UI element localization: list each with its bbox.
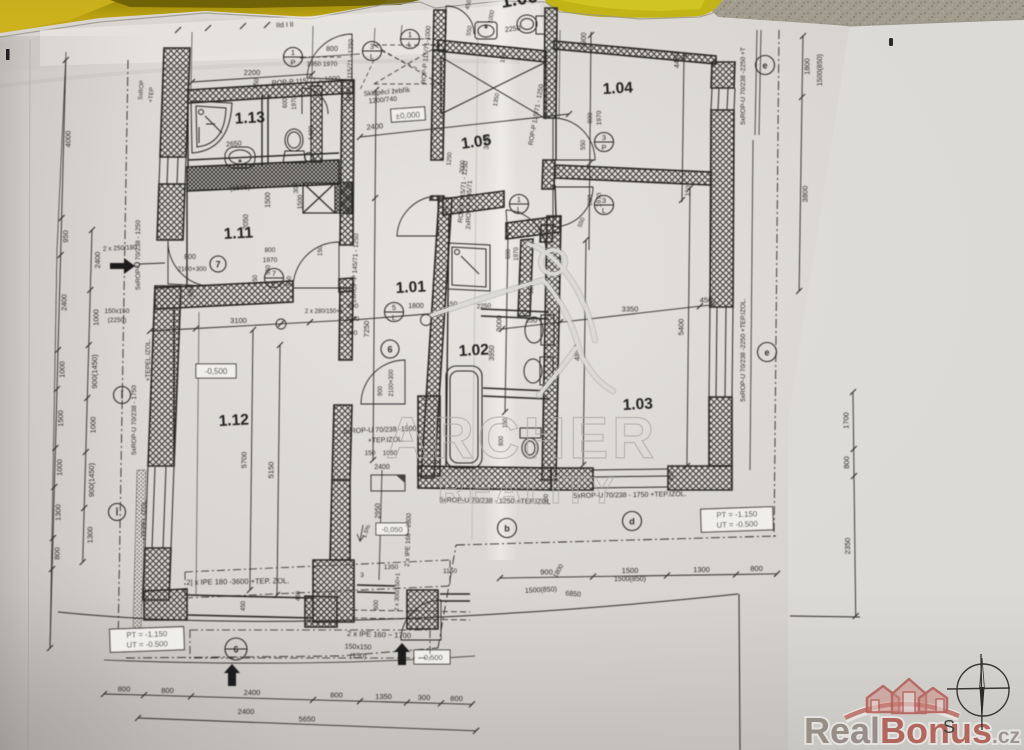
svg-text:150: 150	[525, 316, 538, 325]
svg-text:1000: 1000	[55, 459, 64, 476]
svg-text:450: 450	[189, 286, 195, 297]
svg-text:2200: 2200	[244, 68, 261, 77]
svg-text:1970: 1970	[263, 257, 278, 264]
svg-text:1700: 1700	[841, 412, 850, 429]
svg-text:3: 3	[602, 196, 606, 205]
svg-text:800: 800	[265, 247, 276, 254]
svg-text:5xROP-U 70/238 -2250 +T: 5xROP-U 70/238 -2250 +T	[740, 47, 747, 125]
svg-text:800: 800	[326, 46, 338, 53]
svg-text:2 x 280/150+1: 2 x 280/150+1	[305, 309, 344, 315]
svg-text:1400: 1400	[308, 125, 315, 140]
svg-text:550: 550	[581, 139, 587, 150]
svg-text:2400: 2400	[59, 294, 68, 311]
svg-text:460: 460	[296, 590, 302, 601]
svg-text:REALITY: REALITY	[438, 470, 617, 511]
svg-text:1000: 1000	[92, 309, 101, 326]
svg-text:800: 800	[348, 303, 359, 310]
svg-text:7: 7	[215, 260, 220, 270]
svg-text:900(1450): 900(1450)	[90, 354, 99, 389]
svg-text:600: 600	[443, 206, 450, 217]
svg-text:1970: 1970	[345, 316, 360, 323]
svg-text:3950: 3950	[489, 345, 496, 361]
svg-text:(150): (150)	[350, 653, 367, 661]
svg-text:L: L	[408, 40, 412, 49]
svg-text:1800: 1800	[803, 58, 812, 75]
svg-text:-0,050: -0,050	[381, 525, 402, 534]
svg-text:2100+300: 2100+300	[177, 266, 206, 273]
svg-text:5xROP-U 70/238 -2250 +TEP.IZOL: 5xROP-U 70/238 -2250 +TEP.IZOL.	[740, 298, 747, 402]
svg-text:150: 150	[365, 450, 376, 457]
svg-text:5xROP-U 70/238 - 1750: 5xROP-U 70/238 - 1750	[131, 385, 138, 455]
svg-text:4450: 4450	[674, 52, 681, 68]
svg-text:2250: 2250	[476, 302, 491, 310]
svg-text:1300: 1300	[693, 565, 710, 574]
svg-text:UT = -0.500: UT = -0.500	[126, 639, 168, 649]
svg-text:6850: 6850	[565, 590, 581, 598]
svg-text:d: d	[629, 517, 635, 527]
svg-text:1300: 1300	[86, 527, 95, 544]
svg-text:2050: 2050	[243, 214, 250, 230]
svg-text:950: 950	[61, 230, 70, 243]
svg-text:2400: 2400	[366, 121, 383, 131]
svg-text:L: L	[517, 205, 521, 214]
svg-text:2400: 2400	[244, 688, 261, 697]
svg-text:5650: 5650	[299, 714, 316, 723]
svg-text:1500: 1500	[622, 566, 639, 575]
svg-text:1.02: 1.02	[458, 341, 489, 360]
svg-text:3200: 3200	[483, 134, 491, 150]
svg-text:PT = -1.150: PT = -1.150	[716, 509, 758, 519]
svg-text:600: 600	[506, 248, 512, 259]
svg-text:Ī: Ī	[120, 391, 124, 401]
svg-text:5400: 5400	[677, 319, 686, 336]
svg-text:L: L	[370, 52, 374, 61]
svg-text:3: 3	[602, 133, 606, 142]
svg-text:1970: 1970	[292, 96, 298, 110]
svg-text:1500: 1500	[265, 192, 272, 208]
svg-text:1000: 1000	[89, 417, 98, 434]
svg-text:ARCHER: ARCHER	[386, 406, 658, 471]
svg-text:1500(850): 1500(850)	[817, 54, 824, 86]
svg-text:300: 300	[418, 693, 431, 702]
svg-text:b: b	[504, 524, 510, 534]
svg-text:e: e	[764, 348, 769, 358]
svg-text:(1500): (1500)	[230, 184, 251, 192]
svg-text:4000: 4000	[64, 131, 73, 148]
svg-text:2400: 2400	[238, 707, 255, 716]
svg-text:2400: 2400	[93, 252, 102, 269]
svg-text:600: 600	[374, 599, 380, 610]
svg-text:L: L	[602, 206, 606, 215]
svg-text:450: 450	[700, 296, 713, 305]
svg-text:P: P	[271, 279, 276, 288]
svg-text:900(1450): 900(1450)	[87, 462, 96, 497]
svg-text:1: 1	[517, 195, 521, 204]
svg-text:450: 450	[669, 470, 675, 481]
svg-text:1970: 1970	[514, 247, 520, 261]
svg-text:150: 150	[318, 245, 324, 256]
svg-text:550: 550	[287, 275, 293, 286]
svg-text:150x150: 150x150	[345, 644, 372, 652]
svg-text:P: P	[601, 143, 606, 152]
svg-text:1300: 1300	[54, 504, 63, 521]
svg-text:3350: 3350	[622, 304, 639, 313]
svg-text:3100: 3100	[230, 316, 247, 325]
svg-text:5: 5	[392, 303, 396, 312]
svg-text:L: L	[392, 313, 396, 322]
svg-text:2350: 2350	[843, 538, 852, 555]
svg-text:P: P	[290, 58, 295, 67]
svg-text:800: 800	[750, 564, 763, 573]
svg-text:1050 1970: 1050 1970	[307, 61, 338, 68]
svg-text:600: 600	[283, 97, 289, 108]
svg-text:3800: 3800	[801, 186, 810, 203]
svg-text:1350: 1350	[384, 564, 399, 571]
svg-text:e: e	[762, 61, 767, 71]
svg-text:1: 1	[408, 30, 412, 39]
svg-text:1.13: 1.13	[234, 109, 265, 128]
svg-text:150: 150	[685, 185, 693, 197]
svg-text:1.04: 1.04	[602, 79, 633, 98]
svg-text:1: 1	[291, 48, 295, 57]
svg-text:1000: 1000	[58, 361, 67, 378]
svg-text:3900: 3900	[581, 32, 588, 48]
svg-text:800: 800	[118, 685, 131, 694]
svg-text:3000: 3000	[495, 315, 504, 332]
svg-text:1800: 1800	[408, 303, 424, 310]
svg-text:5xROP-U 70/238 - 1250: 5xROP-U 70/238 - 1250	[135, 220, 142, 290]
svg-text:PT = -1.150: PT = -1.150	[126, 629, 168, 639]
svg-text:7: 7	[272, 269, 276, 278]
svg-text:-0,500: -0,500	[205, 367, 228, 376]
svg-text:300: 300	[293, 182, 300, 193]
svg-text:800: 800	[587, 194, 594, 205]
svg-text:800: 800	[161, 686, 174, 695]
svg-text:800: 800	[53, 547, 62, 560]
svg-text:IId I II: IId I II	[276, 22, 294, 30]
svg-text:2000: 2000	[459, 159, 466, 173]
svg-text:450: 450	[241, 600, 247, 611]
svg-text:±0,000: ±0,000	[395, 110, 421, 121]
svg-text:2650: 2650	[226, 140, 242, 148]
svg-text:Ī: Ī	[115, 508, 119, 518]
svg-text:5700: 5700	[239, 452, 248, 469]
svg-text:800: 800	[842, 456, 851, 469]
svg-text:+TEPEL.IZOL.: +TEPEL.IZOL.	[141, 499, 148, 542]
svg-text:1.01: 1.01	[395, 278, 426, 297]
svg-text:1500: 1500	[297, 194, 304, 209]
svg-text:3: 3	[360, 572, 364, 579]
svg-text:800: 800	[450, 694, 463, 703]
svg-text:(2250): (2250)	[108, 317, 127, 324]
svg-text:300: 300	[347, 330, 358, 337]
svg-text:S: S	[943, 717, 955, 737]
svg-text:150x150: 150x150	[105, 308, 130, 315]
svg-text:UT = -0.500: UT = -0.500	[716, 519, 758, 529]
svg-text:1350: 1350	[375, 692, 392, 701]
svg-text:1500: 1500	[56, 410, 65, 427]
svg-text:1250: 1250	[446, 151, 453, 165]
svg-text:1970: 1970	[596, 110, 603, 125]
svg-text:1500(850): 1500(850)	[614, 576, 646, 583]
svg-text:5150: 5150	[267, 462, 276, 479]
svg-text:7250: 7250	[362, 321, 371, 338]
svg-text:150: 150	[253, 274, 259, 285]
svg-text:2100+300: 2100+300	[389, 369, 395, 397]
svg-text:-0,500: -0,500	[421, 653, 442, 662]
svg-text:+TEPEL.IZOL.: +TEPEL.IZOL.	[145, 339, 152, 382]
svg-text:800: 800	[587, 112, 594, 123]
svg-text:800: 800	[184, 254, 196, 261]
svg-text:6: 6	[387, 345, 392, 355]
svg-text:900: 900	[378, 385, 384, 396]
svg-text:900: 900	[540, 567, 553, 576]
svg-text:1.12: 1.12	[218, 411, 249, 430]
svg-text:3: 3	[370, 42, 374, 51]
svg-text:2| x IPE 180 -3600 +TEP. ZOL.: 2| x IPE 180 -3600 +TEP. ZOL.	[186, 576, 289, 587]
svg-text:800: 800	[330, 691, 343, 700]
